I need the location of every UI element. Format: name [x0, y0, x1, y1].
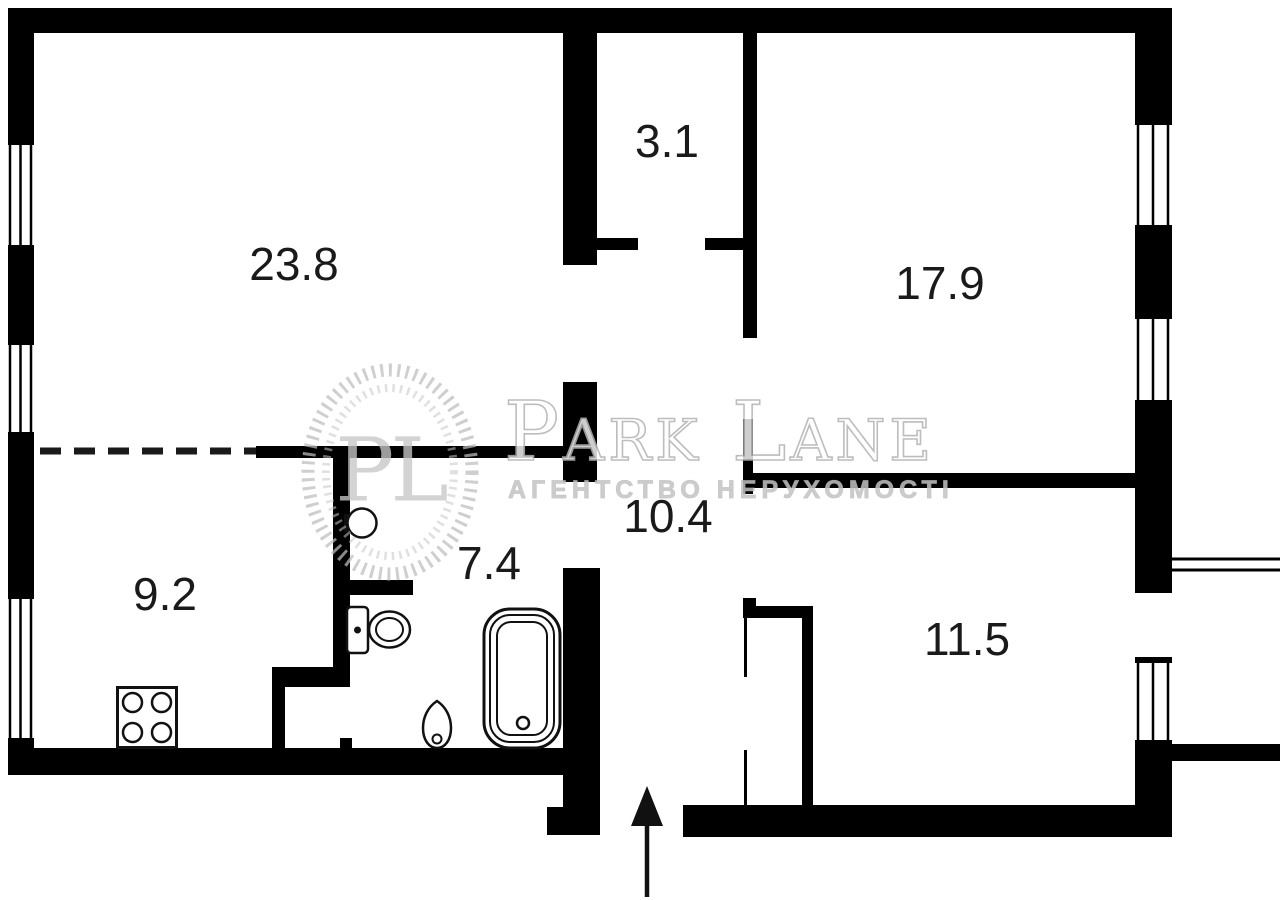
balcony-door-sill [1135, 657, 1172, 663]
wall-top [8, 8, 1172, 33]
toilet-icon [347, 607, 410, 653]
entrance-arrow-icon [631, 786, 663, 897]
doorstub-bathroom [340, 738, 352, 750]
room-label-kitchen: 9.2 [133, 567, 197, 621]
wall-bottom-left [8, 748, 563, 775]
floor-plan: PL Park Lane АГЕНТСТВО НЕРУХОМОСТІ 23.8 … [0, 0, 1280, 900]
wall-bedroom-door-jamb [743, 419, 753, 494]
window-left-1 [8, 145, 34, 245]
closet-partition-line-lower [744, 750, 747, 805]
pedestal-sink-icon [423, 701, 451, 748]
windows [8, 125, 1280, 761]
wall-right-seg2 [1135, 225, 1172, 319]
window-left-3 [8, 599, 34, 738]
wall-bedroom-bedroom2-divider [752, 473, 1135, 488]
doorstub-storage-right [705, 238, 743, 250]
wall-left-seg2 [8, 245, 34, 345]
room-label-storage: 3.1 [635, 114, 699, 168]
stove-icon [118, 688, 177, 748]
room-label-bedroom: 17.9 [895, 256, 985, 310]
wall-kitchen-niche-top [272, 667, 350, 687]
window-right-3 [1135, 663, 1172, 740]
wall-entry-column [563, 568, 600, 835]
window-left-2 [8, 345, 34, 432]
wall-closet-right [802, 618, 813, 805]
wall-livingroom-bottom [256, 446, 565, 458]
wall-entry-column-foot [547, 807, 600, 835]
window-right-2 [1135, 319, 1172, 400]
wall-kitchen-east [272, 687, 285, 748]
wall-right-seg4 [1135, 740, 1172, 837]
bathtub-icon [484, 609, 560, 748]
balcony-marks [1172, 559, 1280, 761]
wall-right-seg1 [1135, 8, 1172, 125]
doorstub-storage-left [597, 238, 638, 250]
room-label-living-room: 23.8 [249, 237, 339, 291]
wall-hall-block [563, 382, 597, 482]
wall-storage-bedroom [743, 33, 757, 338]
wall-livingroom-right-upper [563, 33, 597, 265]
wall-left-seg1 [8, 33, 34, 145]
wall-closet-top [743, 606, 813, 618]
walls [8, 8, 1172, 837]
wall-bathroom-stub [350, 580, 413, 595]
room-label-hallway: 10.4 [623, 489, 713, 543]
room-label-bathroom: 7.4 [457, 536, 521, 590]
closet-partition-line-upper [744, 618, 747, 677]
wall-right-seg3 [1135, 400, 1172, 593]
window-right-1 [1135, 125, 1172, 225]
wall-left-seg3 [8, 432, 34, 599]
room-label-bedroom-2: 11.5 [924, 612, 1010, 666]
wall-bottom-right [683, 805, 1172, 837]
